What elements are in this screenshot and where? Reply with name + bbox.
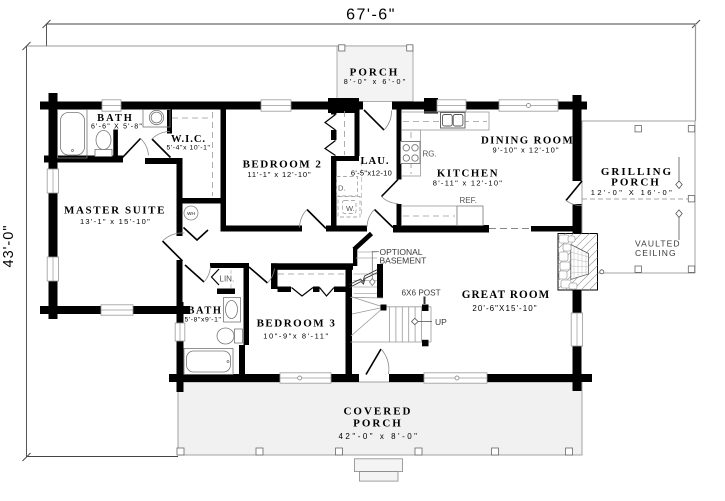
svg-text:W.: W. bbox=[346, 204, 355, 213]
svg-text:5'-8"x9'-1": 5'-8"x9'-1" bbox=[184, 316, 221, 323]
svg-text:9'-10" x 12'-10": 9'-10" x 12'-10" bbox=[492, 145, 559, 154]
svg-text:42"-0" x 8'-0": 42"-0" x 8'-0" bbox=[338, 432, 419, 441]
svg-text:RG.: RG. bbox=[423, 150, 437, 159]
svg-text:BATH: BATH bbox=[187, 305, 222, 316]
svg-text:12'-0" X 16'-0": 12'-0" X 16'-0" bbox=[591, 188, 674, 197]
svg-text:GREAT ROOM: GREAT ROOM bbox=[462, 289, 551, 301]
svg-text:PORCH: PORCH bbox=[611, 176, 661, 188]
svg-text:20'-6"X15'-10": 20'-6"X15'-10" bbox=[472, 304, 537, 313]
svg-text:COVERED: COVERED bbox=[343, 405, 412, 417]
svg-text:43'-0": 43'-0" bbox=[1, 225, 17, 268]
svg-text:REF.: REF. bbox=[460, 196, 477, 205]
svg-text:VAULTED: VAULTED bbox=[635, 238, 681, 248]
svg-text:PORCH: PORCH bbox=[353, 417, 403, 429]
svg-text:D.: D. bbox=[338, 184, 346, 193]
svg-text:8'-11" x 12'-10": 8'-11" x 12'-10" bbox=[433, 178, 504, 187]
svg-text:BEDROOM 3: BEDROOM 3 bbox=[257, 317, 337, 329]
svg-text:67'-6": 67'-6" bbox=[346, 7, 396, 24]
svg-text:11'-1" x 12'-10": 11'-1" x 12'-10" bbox=[247, 170, 311, 179]
svg-text:6'-6" X 5'-8": 6'-6" X 5'-8" bbox=[91, 123, 143, 130]
svg-text:6'-5"x12-10: 6'-5"x12-10 bbox=[351, 168, 392, 177]
svg-text:CEILING: CEILING bbox=[635, 248, 677, 258]
svg-text:MASTER SUITE: MASTER SUITE bbox=[64, 204, 166, 216]
svg-text:8'-0" x 6'-0": 8'-0" x 6'-0" bbox=[344, 77, 408, 86]
svg-text:10"-9"x 8'-11": 10"-9"x 8'-11" bbox=[263, 331, 329, 340]
svg-text:LIN.: LIN. bbox=[220, 275, 235, 284]
svg-text:WH: WH bbox=[187, 211, 195, 216]
svg-text:6X6 POST: 6X6 POST bbox=[402, 289, 441, 298]
svg-text:BASEMENT: BASEMENT bbox=[380, 255, 427, 265]
svg-text:UP: UP bbox=[435, 317, 447, 327]
svg-text:BEDROOM 2: BEDROOM 2 bbox=[243, 158, 323, 170]
svg-text:LAU.: LAU. bbox=[360, 156, 389, 167]
svg-text:5'-4"x 10'-1": 5'-4"x 10'-1" bbox=[167, 144, 211, 151]
svg-text:13'-1" x 15'-10": 13'-1" x 15'-10" bbox=[80, 217, 151, 226]
